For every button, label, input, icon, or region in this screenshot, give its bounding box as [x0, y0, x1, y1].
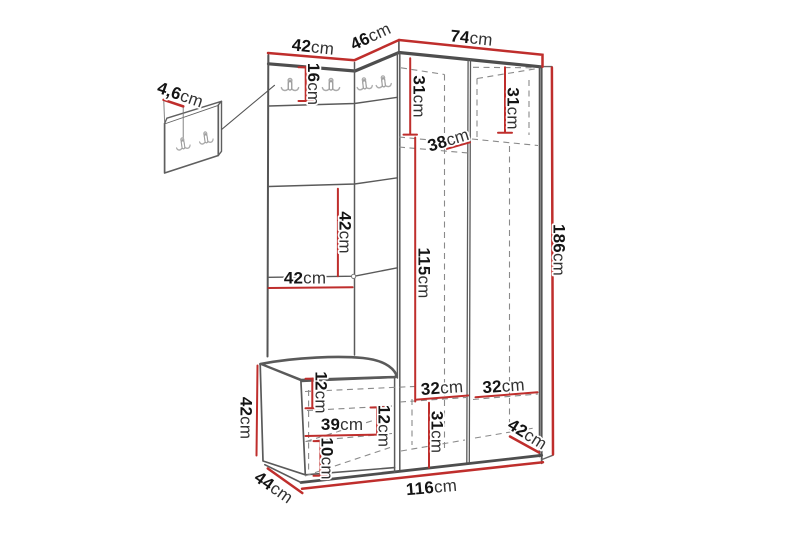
svg-text:42cm: 42cm	[336, 211, 355, 253]
svg-text:32cm: 32cm	[420, 377, 464, 399]
svg-text:42cm: 42cm	[284, 268, 326, 287]
svg-text:46cm: 46cm	[347, 19, 393, 54]
svg-text:186cm: 186cm	[550, 224, 569, 276]
svg-text:12cm: 12cm	[375, 405, 394, 447]
svg-text:16cm: 16cm	[304, 63, 323, 105]
svg-text:31cm: 31cm	[428, 411, 447, 453]
svg-text:38cm: 38cm	[425, 125, 471, 156]
svg-text:32cm: 32cm	[482, 375, 526, 397]
svg-text:115cm: 115cm	[415, 247, 434, 298]
svg-text:39cm: 39cm	[321, 415, 363, 434]
svg-text:31cm: 31cm	[504, 87, 523, 129]
svg-text:42cm: 42cm	[504, 415, 550, 454]
svg-text:12cm: 12cm	[312, 371, 331, 413]
svg-text:42cm: 42cm	[237, 397, 256, 439]
svg-text:10cm: 10cm	[318, 437, 337, 479]
svg-text:116cm: 116cm	[405, 476, 458, 499]
svg-text:31cm: 31cm	[410, 75, 429, 117]
